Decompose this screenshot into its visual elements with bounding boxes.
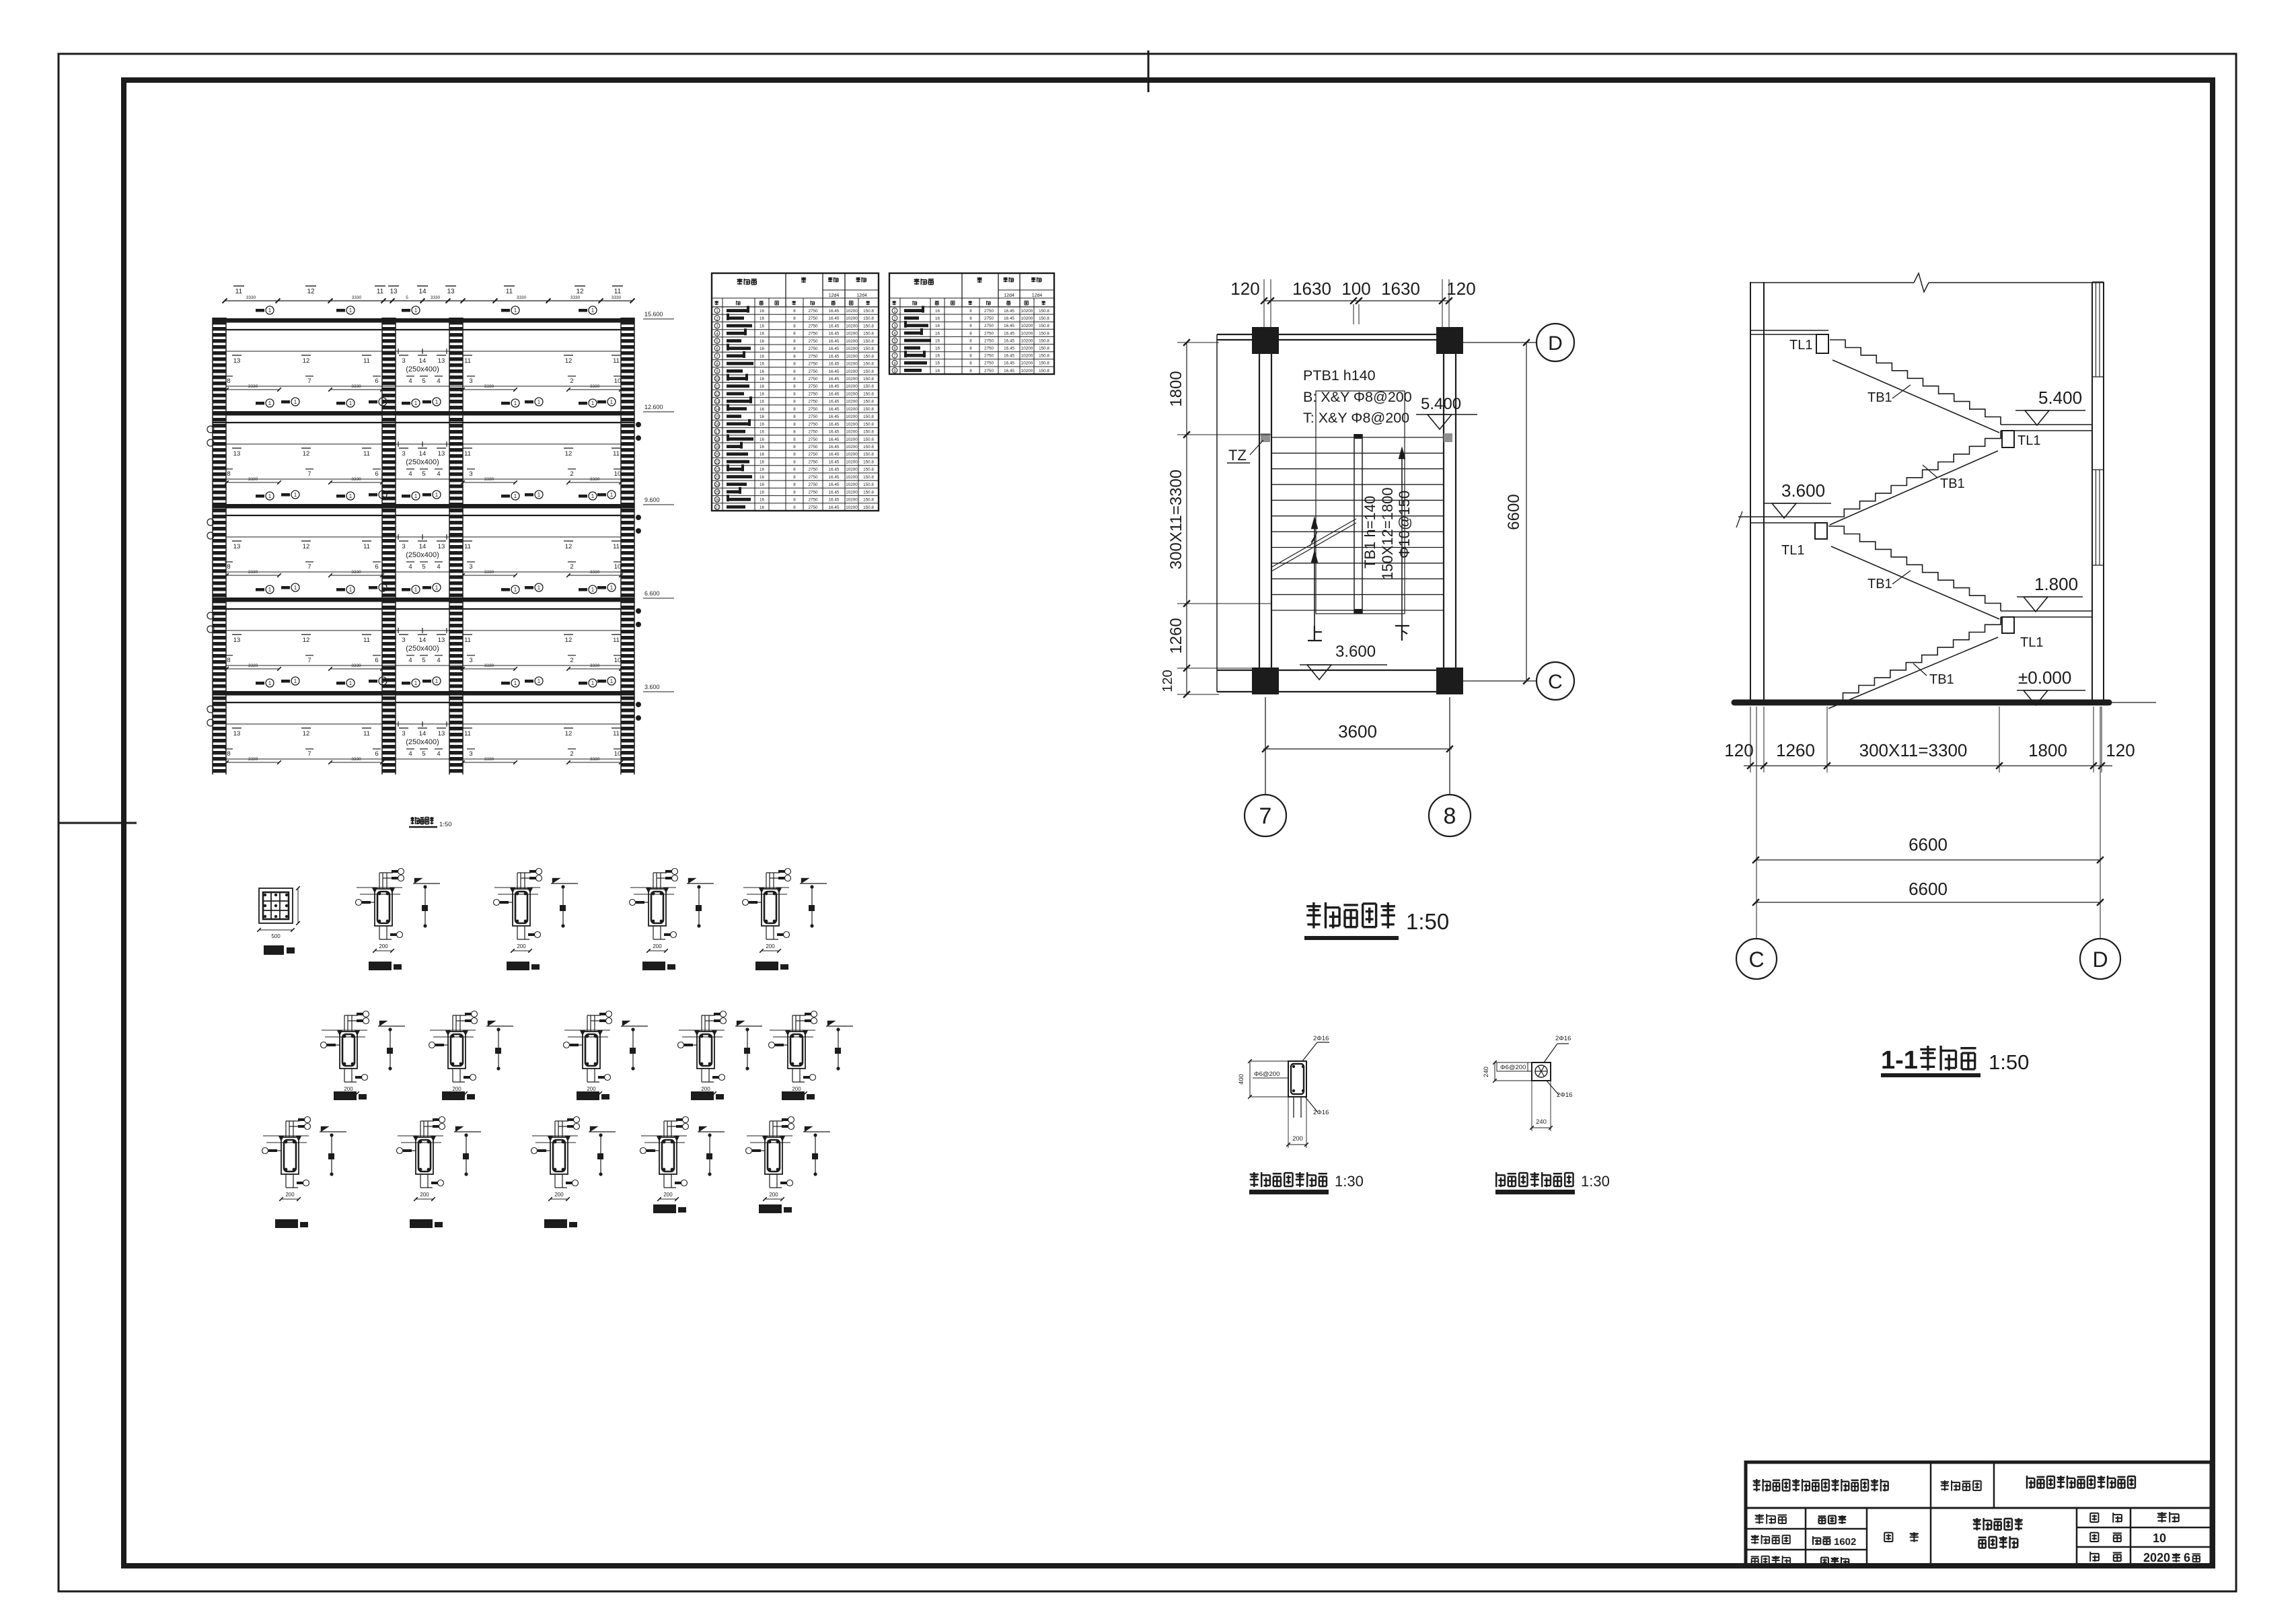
svg-text:3330: 3330 (351, 663, 361, 668)
svg-text:26: 26 (715, 499, 720, 503)
svg-text:11: 11 (613, 543, 620, 550)
svg-text:16: 16 (935, 354, 940, 359)
svg-text:8: 8 (969, 309, 972, 314)
svg-text:16.45: 16.45 (829, 505, 840, 510)
svg-text:10: 10 (614, 657, 622, 664)
svg-text:1: 1 (294, 678, 297, 684)
svg-text:10: 10 (715, 377, 720, 382)
svg-text:2Φ16: 2Φ16 (1557, 1091, 1572, 1099)
svg-text:3330: 3330 (590, 757, 600, 762)
svg-text:2750: 2750 (808, 407, 818, 412)
svg-text:4: 4 (437, 657, 440, 664)
svg-text:8: 8 (793, 445, 796, 449)
svg-text:1: 1 (610, 492, 614, 498)
svg-text:16.45: 16.45 (829, 324, 840, 329)
svg-text:16.45: 16.45 (829, 407, 840, 412)
svg-text:150.8: 150.8 (863, 498, 874, 503)
svg-text:2750: 2750 (984, 316, 994, 321)
svg-text:22: 22 (715, 468, 720, 472)
svg-text:200: 200 (285, 1192, 295, 1198)
svg-text:10200: 10200 (1021, 324, 1033, 328)
svg-text:3330: 3330 (248, 570, 258, 575)
svg-text:B: X&Y Φ8@200: B: X&Y Φ8@200 (1303, 389, 1412, 405)
svg-text:10200: 10200 (846, 362, 858, 367)
svg-text:1: 1 (414, 587, 418, 593)
svg-text:150.8: 150.8 (863, 369, 874, 374)
svg-text:2750: 2750 (808, 362, 818, 367)
svg-text:16: 16 (760, 498, 765, 503)
svg-text:3: 3 (469, 563, 472, 571)
svg-text:10200: 10200 (846, 468, 858, 472)
svg-text:12: 12 (565, 637, 572, 644)
svg-text:13: 13 (390, 288, 398, 295)
svg-text:2750: 2750 (808, 369, 818, 374)
svg-text:16.45: 16.45 (1004, 338, 1014, 343)
svg-text:16.45: 16.45 (829, 468, 840, 472)
svg-text:3: 3 (469, 377, 472, 385)
svg-text:16.45: 16.45 (829, 339, 840, 344)
svg-text:200: 200 (792, 1086, 801, 1092)
svg-text:15: 15 (715, 415, 720, 419)
svg-text:6: 6 (375, 470, 378, 478)
svg-text:10200: 10200 (1021, 361, 1033, 366)
svg-text:12d4: 12d4 (856, 293, 867, 298)
svg-text:16: 16 (935, 309, 940, 314)
svg-text:3.600: 3.600 (1335, 643, 1376, 661)
svg-text:8: 8 (793, 452, 796, 457)
svg-text:12d4: 12d4 (1004, 293, 1014, 298)
svg-text:13: 13 (438, 357, 445, 365)
svg-text:11: 11 (464, 357, 471, 365)
svg-text:8: 8 (969, 369, 972, 373)
svg-text:16: 16 (760, 407, 765, 412)
svg-text:7: 7 (307, 470, 311, 478)
svg-text:7: 7 (1259, 803, 1272, 829)
svg-text:1: 1 (381, 399, 385, 405)
svg-text:150.8: 150.8 (1039, 361, 1049, 366)
svg-text:400: 400 (1238, 1074, 1245, 1085)
svg-text:1: 1 (349, 308, 353, 314)
svg-text:6: 6 (2184, 1551, 2190, 1564)
svg-text:10200: 10200 (1021, 331, 1033, 336)
svg-text:8: 8 (793, 354, 796, 359)
svg-text:10: 10 (614, 563, 622, 571)
svg-text:7: 7 (307, 750, 311, 758)
svg-text:1630: 1630 (1292, 279, 1331, 299)
svg-text:7: 7 (307, 377, 311, 385)
svg-text:16.45: 16.45 (829, 384, 840, 389)
svg-text:23: 23 (715, 476, 720, 480)
svg-text:14: 14 (419, 730, 427, 737)
svg-text:1602: 1602 (1834, 1536, 1856, 1548)
svg-text:13: 13 (233, 357, 241, 365)
svg-text:TB1: TB1 (1940, 476, 1965, 491)
svg-text:14: 14 (419, 357, 427, 365)
svg-text:1: 1 (349, 493, 353, 499)
svg-text:16.45: 16.45 (1004, 354, 1014, 359)
svg-text:16: 16 (760, 362, 765, 367)
svg-text:3330: 3330 (517, 295, 527, 300)
svg-text:200: 200 (587, 1086, 596, 1092)
svg-text:TL1: TL1 (1789, 338, 1812, 353)
svg-text:C: C (1748, 947, 1764, 972)
svg-text:16.45: 16.45 (1004, 324, 1014, 328)
svg-text:10: 10 (614, 750, 622, 758)
svg-text:16.45: 16.45 (829, 498, 840, 503)
svg-text:16: 16 (935, 369, 940, 373)
svg-text:2750: 2750 (808, 445, 818, 449)
svg-text:3330: 3330 (351, 477, 361, 482)
svg-text:3: 3 (469, 750, 472, 758)
svg-text:16: 16 (760, 316, 765, 321)
svg-text:2750: 2750 (808, 309, 818, 314)
svg-text:16.45: 16.45 (829, 414, 840, 419)
svg-text:10200: 10200 (846, 475, 858, 480)
svg-text:1: 1 (349, 400, 353, 406)
svg-text:100: 100 (1341, 279, 1370, 299)
svg-text:11: 11 (363, 543, 370, 550)
svg-text:1: 1 (268, 400, 272, 406)
svg-text:27: 27 (715, 506, 720, 510)
svg-text:8: 8 (793, 316, 796, 321)
svg-text:150.8: 150.8 (1039, 331, 1049, 336)
svg-text:12d4: 12d4 (1032, 293, 1043, 298)
svg-text:10200: 10200 (846, 309, 858, 314)
svg-text:10200: 10200 (846, 347, 858, 351)
svg-text:150.8: 150.8 (863, 452, 874, 457)
svg-text:2750: 2750 (808, 505, 818, 510)
svg-text:10200: 10200 (846, 445, 858, 449)
svg-text:2750: 2750 (984, 369, 994, 373)
svg-text:8: 8 (793, 377, 796, 382)
svg-text:150.8: 150.8 (1039, 324, 1049, 328)
svg-text:12: 12 (303, 357, 310, 365)
svg-text:1: 1 (610, 678, 614, 684)
svg-text:16: 16 (935, 316, 940, 321)
svg-text:150.8: 150.8 (863, 309, 874, 314)
svg-text:150.8: 150.8 (863, 324, 874, 329)
svg-text:16.45: 16.45 (829, 369, 840, 374)
svg-text:11: 11 (506, 288, 513, 295)
svg-text:TL1: TL1 (2020, 635, 2043, 650)
svg-text:3: 3 (402, 637, 405, 644)
svg-text:150.8: 150.8 (863, 437, 874, 442)
svg-text:12: 12 (565, 730, 572, 737)
svg-text:2750: 2750 (808, 347, 818, 351)
svg-text:1: 1 (268, 587, 272, 593)
svg-text:16.45: 16.45 (1004, 369, 1014, 373)
svg-text:150.8: 150.8 (863, 475, 874, 480)
svg-text:150.8: 150.8 (1039, 309, 1049, 314)
svg-text:1:30: 1:30 (1335, 1173, 1364, 1190)
svg-text:12: 12 (303, 450, 310, 458)
svg-text:200: 200 (663, 1192, 673, 1198)
svg-text:8: 8 (793, 505, 796, 510)
svg-text:2750: 2750 (808, 400, 818, 404)
svg-text:8: 8 (793, 460, 796, 465)
svg-text:16: 16 (760, 430, 765, 435)
svg-text:PTB1 h140: PTB1 h140 (1303, 367, 1376, 384)
svg-text:150.8: 150.8 (863, 392, 874, 397)
svg-text:8: 8 (793, 490, 796, 495)
svg-text:16.45: 16.45 (829, 392, 840, 397)
svg-text:1-1: 1-1 (1881, 1046, 1918, 1075)
svg-text:16: 16 (760, 437, 765, 442)
svg-text:2750: 2750 (808, 475, 818, 480)
svg-text:200: 200 (1292, 1135, 1303, 1143)
svg-text:120: 120 (1446, 279, 1475, 299)
svg-text:4: 4 (408, 377, 412, 385)
svg-text:6: 6 (375, 377, 378, 385)
svg-text:13: 13 (233, 450, 241, 458)
svg-text:200: 200 (379, 943, 388, 949)
svg-text:150.8: 150.8 (863, 445, 874, 449)
svg-text:150.8: 150.8 (863, 316, 874, 321)
svg-text:12: 12 (303, 730, 310, 737)
svg-text:16.45: 16.45 (829, 445, 840, 449)
svg-text:16.45: 16.45 (829, 354, 840, 359)
svg-text:D: D (1548, 332, 1563, 355)
svg-text:11: 11 (613, 357, 620, 365)
svg-text:16.45: 16.45 (1004, 347, 1014, 351)
svg-text:11: 11 (363, 730, 370, 737)
svg-text:1:50: 1:50 (439, 821, 452, 828)
svg-text:10200: 10200 (1021, 316, 1033, 321)
svg-text:1: 1 (538, 678, 541, 684)
svg-text:8: 8 (969, 361, 972, 366)
svg-text:10: 10 (614, 377, 622, 385)
svg-text:3330: 3330 (248, 477, 258, 482)
svg-text:13: 13 (438, 730, 445, 737)
svg-text:200: 200 (701, 1086, 710, 1092)
svg-text:1: 1 (349, 587, 353, 593)
svg-text:14: 14 (419, 450, 427, 458)
svg-text:2750: 2750 (808, 377, 818, 382)
svg-text:3330: 3330 (351, 570, 361, 575)
svg-text:21: 21 (715, 461, 720, 465)
svg-text:1: 1 (294, 585, 297, 591)
svg-text:1: 1 (514, 308, 517, 314)
svg-text:2: 2 (570, 563, 573, 571)
svg-text:13: 13 (233, 637, 241, 644)
svg-text:150.8: 150.8 (863, 422, 874, 427)
svg-text:150.8: 150.8 (863, 347, 874, 351)
svg-text:3330: 3330 (248, 757, 258, 762)
svg-text:10200: 10200 (846, 324, 858, 329)
svg-text:16.45: 16.45 (829, 332, 840, 336)
svg-text:1: 1 (591, 308, 595, 314)
svg-text:8: 8 (227, 563, 230, 571)
svg-text:3330: 3330 (352, 295, 362, 300)
svg-text:3330: 3330 (590, 570, 600, 575)
svg-text:200: 200 (554, 1192, 564, 1198)
svg-text:2750: 2750 (808, 324, 818, 329)
svg-text:150.8: 150.8 (863, 362, 874, 367)
svg-text:4: 4 (437, 563, 440, 571)
svg-text:1: 1 (414, 308, 418, 314)
svg-text:1: 1 (514, 587, 517, 593)
svg-text:8: 8 (793, 400, 796, 404)
svg-text:14: 14 (715, 408, 720, 412)
svg-text:120: 120 (1724, 740, 1753, 760)
svg-text:3330: 3330 (484, 757, 494, 762)
svg-text:16: 16 (760, 369, 765, 374)
svg-text:12: 12 (303, 637, 310, 644)
svg-text:1260: 1260 (1167, 618, 1185, 653)
svg-text:6600: 6600 (1505, 494, 1523, 530)
svg-text:1: 1 (538, 492, 541, 498)
svg-text:150.8: 150.8 (863, 384, 874, 389)
svg-text:2Φ16: 2Φ16 (1555, 1035, 1571, 1042)
svg-text:8: 8 (793, 324, 796, 329)
svg-text:1: 1 (435, 678, 439, 684)
svg-text:13: 13 (715, 400, 720, 404)
svg-text:10200: 10200 (1021, 347, 1033, 351)
svg-text:10200: 10200 (846, 422, 858, 427)
svg-text:3330: 3330 (590, 663, 600, 668)
svg-text:16: 16 (715, 423, 720, 427)
svg-text:2750: 2750 (984, 331, 994, 336)
svg-text:2750: 2750 (808, 468, 818, 472)
svg-text:3330: 3330 (351, 757, 361, 762)
svg-text:1:50: 1:50 (1989, 1050, 2029, 1074)
svg-text:2750: 2750 (808, 422, 818, 427)
svg-text:14: 14 (419, 637, 427, 644)
svg-text:11: 11 (613, 450, 620, 458)
svg-text:11: 11 (464, 730, 471, 737)
svg-text:150.8: 150.8 (863, 377, 874, 382)
svg-text:11: 11 (613, 730, 620, 737)
svg-text:8: 8 (1444, 803, 1456, 829)
svg-text:10200: 10200 (846, 498, 858, 503)
svg-text:25: 25 (715, 491, 720, 495)
svg-text:4: 4 (408, 563, 412, 571)
svg-text:12: 12 (565, 450, 572, 458)
svg-text:13: 13 (438, 543, 445, 550)
svg-text:8: 8 (793, 339, 796, 344)
svg-text:8: 8 (793, 407, 796, 412)
svg-text:16.45: 16.45 (829, 362, 840, 367)
svg-text:TL1: TL1 (2017, 433, 2040, 448)
svg-text:14: 14 (419, 543, 427, 550)
svg-text:(250x400): (250x400) (406, 458, 439, 466)
svg-text:13: 13 (233, 730, 241, 737)
svg-text:1260: 1260 (1776, 740, 1815, 760)
svg-text:12: 12 (576, 288, 584, 295)
svg-text:10200: 10200 (1021, 354, 1033, 359)
svg-text:1: 1 (610, 399, 614, 405)
svg-text:150.8: 150.8 (1039, 316, 1049, 321)
svg-text:11: 11 (235, 288, 243, 295)
svg-text:TL1: TL1 (1781, 543, 1804, 558)
svg-text:150.8: 150.8 (863, 332, 874, 336)
svg-text:18: 18 (715, 438, 720, 442)
svg-text:11: 11 (377, 288, 384, 295)
svg-text:TZ: TZ (1228, 447, 1247, 464)
svg-text:1: 1 (610, 585, 614, 591)
svg-text:150.8: 150.8 (1039, 369, 1049, 373)
svg-text:1800: 1800 (2028, 740, 2067, 760)
svg-text:TB1: TB1 (1867, 577, 1892, 591)
svg-text:1: 1 (435, 585, 439, 591)
svg-text:8: 8 (793, 392, 796, 397)
svg-text:Φ10@150: Φ10@150 (1396, 491, 1413, 558)
svg-text:2750: 2750 (808, 452, 818, 457)
svg-text:11: 11 (464, 450, 471, 458)
svg-text:10200: 10200 (846, 452, 858, 457)
svg-text:12.600: 12.600 (644, 404, 663, 410)
svg-text:2750: 2750 (984, 338, 994, 343)
svg-text:13: 13 (438, 637, 445, 644)
svg-text:1: 1 (268, 493, 272, 499)
svg-text:150.8: 150.8 (863, 468, 874, 472)
svg-text:11: 11 (613, 637, 620, 644)
svg-text:1: 1 (294, 492, 297, 498)
svg-text:500: 500 (271, 933, 281, 939)
svg-text:3330: 3330 (570, 295, 581, 300)
svg-text:3: 3 (402, 730, 405, 737)
svg-text:150.8: 150.8 (863, 490, 874, 495)
svg-text:16: 16 (760, 354, 765, 359)
svg-text:10200: 10200 (846, 490, 858, 495)
svg-text:10200: 10200 (846, 332, 858, 336)
svg-text:3330: 3330 (484, 663, 494, 668)
svg-text:8: 8 (793, 384, 796, 389)
svg-text:8: 8 (227, 657, 230, 664)
svg-text:8: 8 (793, 347, 796, 351)
svg-text:3600: 3600 (1338, 721, 1377, 742)
svg-text:6: 6 (375, 657, 378, 664)
svg-text:1: 1 (514, 493, 517, 499)
svg-text:8: 8 (793, 362, 796, 367)
svg-text:7: 7 (307, 563, 311, 571)
svg-text:16: 16 (760, 377, 765, 382)
svg-text:3330: 3330 (590, 477, 600, 482)
svg-text:11: 11 (464, 543, 471, 550)
svg-text:16.45: 16.45 (829, 437, 840, 442)
svg-text:2: 2 (570, 377, 573, 385)
svg-text:13: 13 (447, 288, 455, 295)
svg-text:10200: 10200 (846, 384, 858, 389)
svg-text:10200: 10200 (846, 430, 858, 435)
svg-text:1630: 1630 (1381, 279, 1420, 299)
svg-text:16: 16 (760, 460, 765, 465)
svg-text:10200: 10200 (846, 354, 858, 359)
svg-text:3: 3 (469, 657, 472, 664)
svg-text:4: 4 (408, 657, 412, 664)
svg-text:8: 8 (793, 482, 796, 487)
svg-text:9.600: 9.600 (644, 497, 660, 503)
svg-text:150.8: 150.8 (1039, 354, 1049, 359)
svg-text:150.8: 150.8 (863, 482, 874, 487)
svg-text:1: 1 (435, 399, 439, 405)
svg-text:12d4: 12d4 (829, 293, 840, 298)
svg-text:240: 240 (1483, 1067, 1490, 1077)
svg-text:11: 11 (363, 357, 370, 365)
svg-text:16.45: 16.45 (829, 316, 840, 321)
svg-text:1: 1 (349, 680, 353, 686)
svg-text:200: 200 (517, 943, 526, 949)
svg-text:1800: 1800 (1167, 371, 1185, 406)
svg-text:2750: 2750 (808, 316, 818, 321)
svg-text:200: 200 (344, 1086, 353, 1092)
svg-text:4: 4 (408, 750, 412, 758)
svg-text:16.45: 16.45 (829, 475, 840, 480)
svg-text:(250x400): (250x400) (406, 738, 439, 746)
svg-text:150.8: 150.8 (863, 460, 874, 465)
svg-text:16.45: 16.45 (829, 482, 840, 487)
svg-text:TB1 h=140: TB1 h=140 (1362, 496, 1378, 569)
